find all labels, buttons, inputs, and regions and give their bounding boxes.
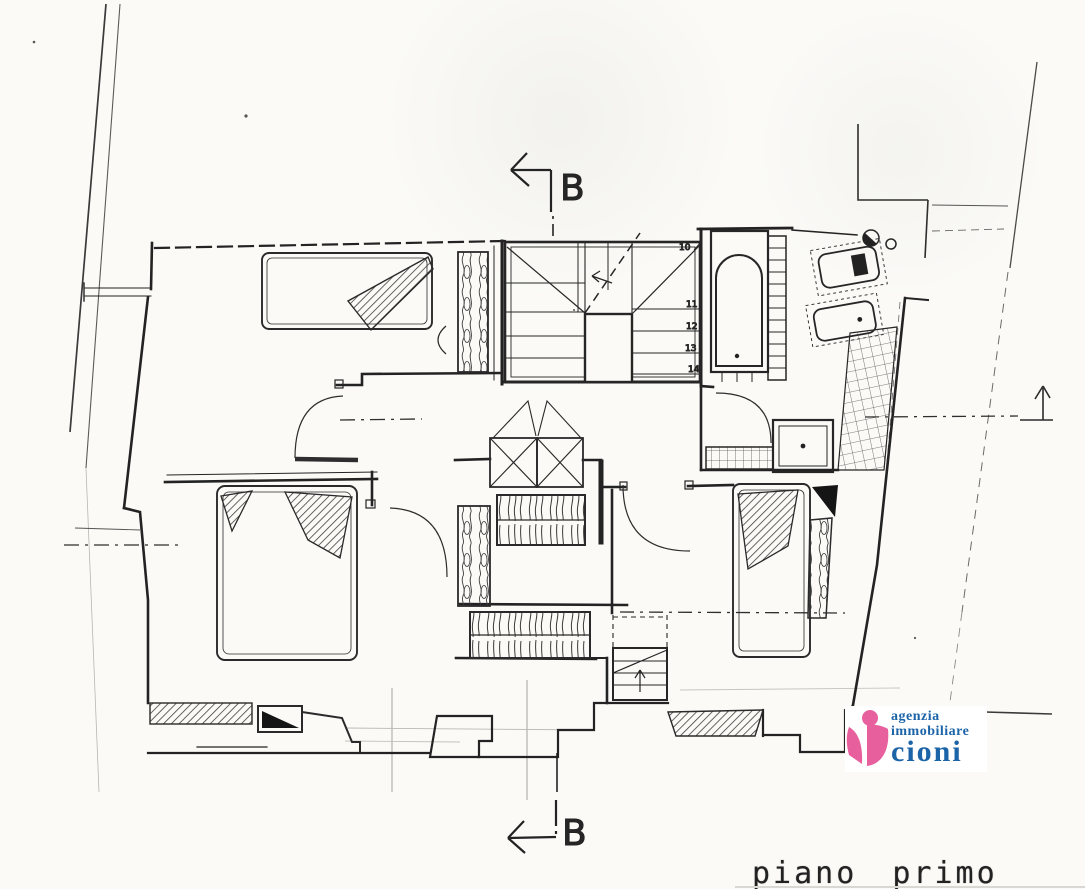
stair-step-number: 11	[686, 300, 697, 310]
toilet	[810, 238, 887, 295]
wardrobe-wood	[458, 506, 490, 606]
logo-line-cioni: cioni	[891, 739, 969, 765]
section-marker-b-bottom: B	[508, 753, 587, 854]
logo-line-agenzia: agenzia	[891, 709, 969, 724]
tiled-band	[706, 447, 773, 469]
crossed-closet	[490, 401, 583, 487]
survey-lines-top-right	[858, 124, 1008, 258]
wall-pier	[430, 716, 492, 757]
stair-step-number: 14	[688, 365, 700, 375]
bathroom	[706, 230, 897, 472]
floor-caption: piano primo	[752, 856, 998, 889]
window-sill-bottom-right	[668, 710, 763, 736]
bedroom-right	[733, 484, 838, 657]
corner-marker	[812, 485, 838, 517]
bedroom-top-left	[262, 252, 488, 372]
wardrobe-wood	[458, 252, 488, 372]
boundary-lines	[70, 4, 1052, 792]
section-label-bottom: B	[562, 813, 587, 854]
scanned-floor-plan-page: 10 11 12 13 14	[0, 0, 1085, 889]
clothes-rack-lower	[470, 612, 590, 658]
central-closets	[458, 401, 590, 658]
construction-lines	[345, 680, 900, 800]
bed-blanket	[738, 490, 798, 569]
logo-words: agenzia immobiliare cioni	[891, 706, 969, 765]
pillow	[285, 492, 352, 558]
pillow	[221, 491, 252, 531]
stair-step-number: 10	[679, 243, 691, 253]
reference-arrow-right	[1020, 386, 1053, 420]
agency-logo: agenzia immobiliare cioni	[845, 706, 987, 772]
page-edge-line	[735, 886, 1085, 888]
section-marker-b-top: B	[511, 153, 585, 243]
tiled-wall-strip	[768, 236, 786, 380]
bathtub	[711, 231, 768, 372]
bedroom-left	[217, 486, 357, 660]
stair-step-number: 12	[686, 322, 697, 332]
shower-tray	[773, 420, 833, 472]
section-label-top: B	[560, 168, 585, 209]
attic-stair	[613, 615, 667, 700]
bed-blanket	[348, 257, 433, 330]
wardrobe-wood	[808, 518, 832, 618]
window-sills-bottom-left	[150, 703, 360, 753]
cioni-person-icon	[845, 706, 891, 768]
staircase: 10 11 12 13 14	[505, 233, 702, 382]
clothes-rack-upper	[497, 495, 585, 545]
stair-step-number: 13	[685, 344, 696, 354]
